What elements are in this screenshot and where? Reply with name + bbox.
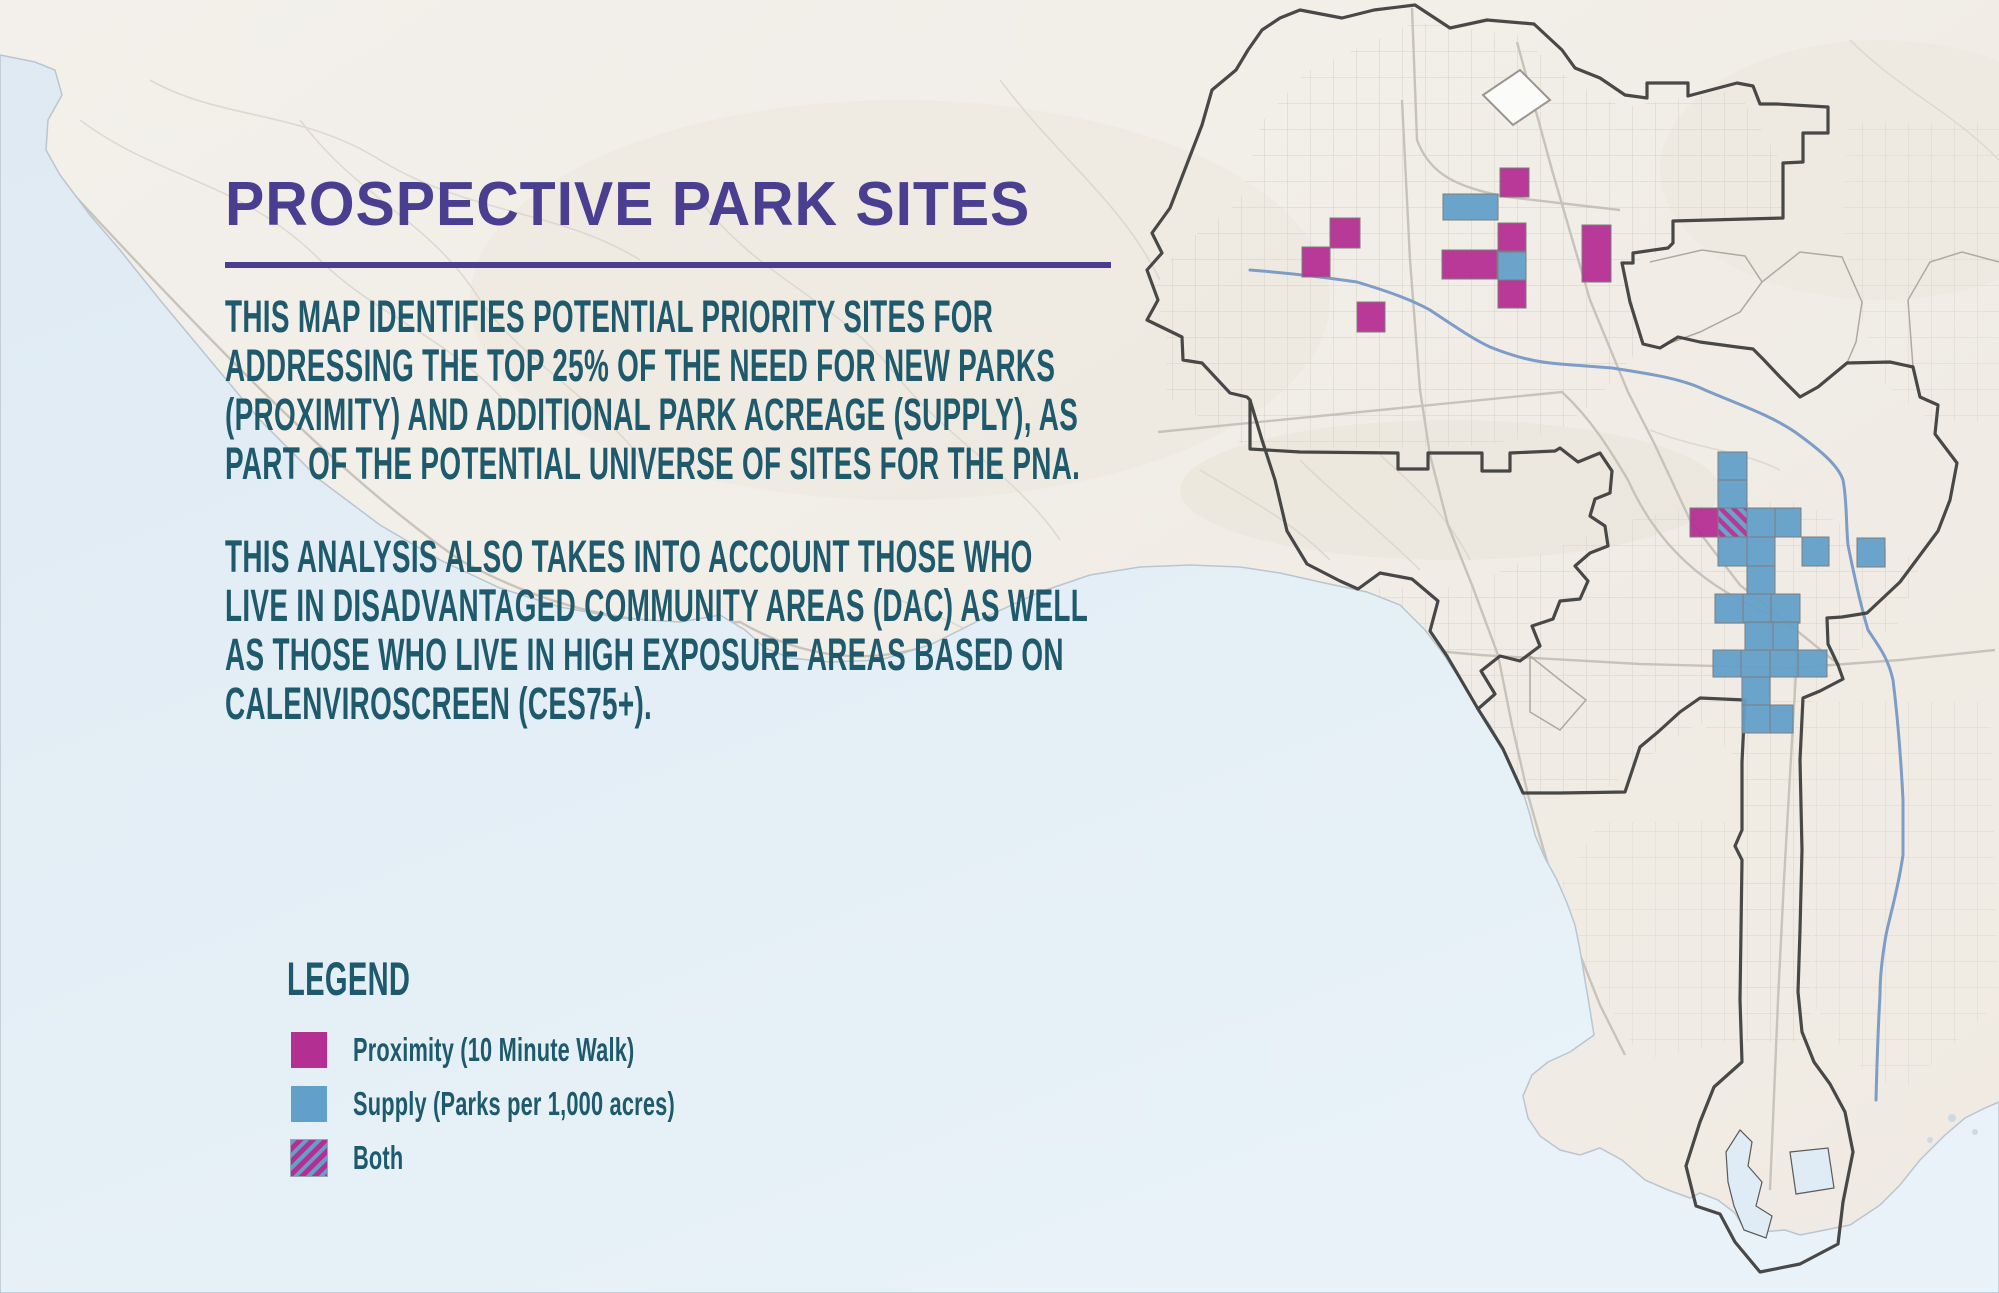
intro-paragraph: THIS MAP IDENTIFIES POTENTIAL PRIORITY S… xyxy=(225,292,1093,488)
analysis-line: THIS ANALYSIS ALSO TAKES INTO ACCOUNT TH… xyxy=(225,532,1093,581)
infographic-page: PROSPECTIVE PARK SITES THIS MAP IDENTIFI… xyxy=(0,0,1999,1293)
supply-swatch xyxy=(291,1086,327,1122)
legend-item-proximity: Proximity (10 Minute Walk) xyxy=(291,1032,841,1068)
legend-label: Proximity (10 Minute Walk) xyxy=(353,1032,634,1068)
intro-line: THIS MAP IDENTIFIES POTENTIAL PRIORITY S… xyxy=(225,292,1093,341)
intro-line: ADDRESSING THE TOP 25% OF THE NEED FOR N… xyxy=(225,341,1093,390)
analysis-paragraph: THIS ANALYSIS ALSO TAKES INTO ACCOUNT TH… xyxy=(225,532,1093,728)
analysis-line: AS THOSE WHO LIVE IN HIGH EXPOSURE AREAS… xyxy=(225,630,1093,679)
intro-line: (PROXIMITY) AND ADDITIONAL PARK ACREAGE … xyxy=(225,390,1093,439)
legend-label: Both xyxy=(353,1140,403,1176)
proximity-swatch xyxy=(291,1032,327,1068)
legend-label: Supply (Parks per 1,000 acres) xyxy=(353,1086,675,1122)
legend: LEGEND Proximity (10 Minute Walk) Supply… xyxy=(287,954,841,1194)
title-underline xyxy=(225,262,1111,268)
intro-line: PART OF THE POTENTIAL UNIVERSE OF SITES … xyxy=(225,439,1093,488)
legend-item-supply: Supply (Parks per 1,000 acres) xyxy=(291,1086,841,1122)
both-swatch xyxy=(291,1140,327,1176)
legend-items: Proximity (10 Minute Walk) Supply (Parks… xyxy=(291,1032,841,1176)
legend-heading: LEGEND xyxy=(287,954,630,1004)
analysis-line: CALENVIROSCREEN (CES75+). xyxy=(225,679,1093,728)
content-overlay: PROSPECTIVE PARK SITES THIS MAP IDENTIFI… xyxy=(0,0,1999,1293)
analysis-line: LIVE IN DISADVANTAGED COMMUNITY AREAS (D… xyxy=(225,581,1093,630)
page-title: PROSPECTIVE PARK SITES xyxy=(225,172,1030,238)
legend-item-both: Both xyxy=(291,1140,841,1176)
